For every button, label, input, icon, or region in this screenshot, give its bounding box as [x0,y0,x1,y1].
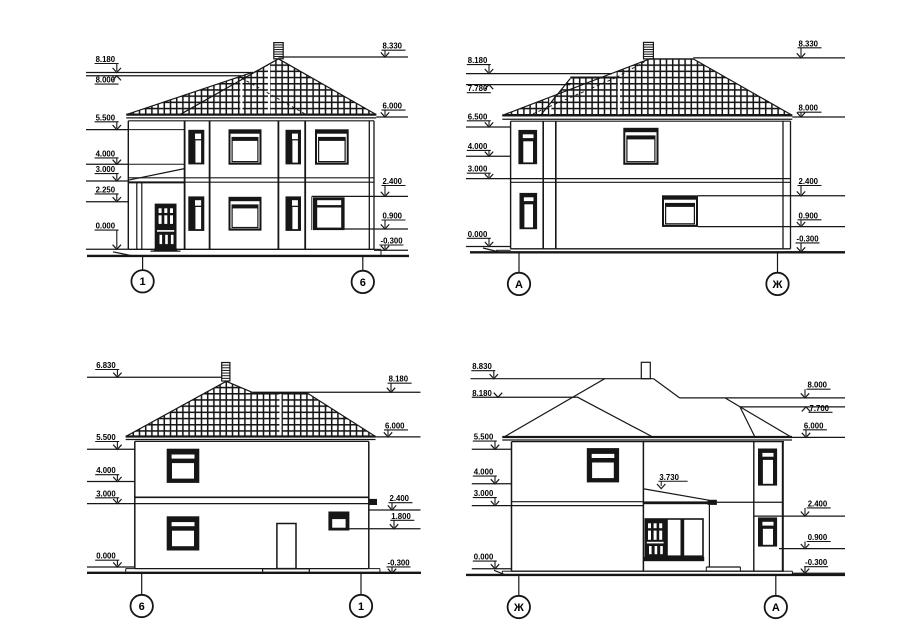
svg-text:6.830: 6.830 [96,361,116,370]
svg-text:5.500: 5.500 [96,113,116,122]
svg-text:8.000: 8.000 [799,104,819,113]
svg-text:2.400: 2.400 [383,177,403,186]
svg-text:1: 1 [358,601,364,613]
svg-text:4.000: 4.000 [474,468,494,477]
svg-text:5.500: 5.500 [96,433,116,442]
svg-text:1.800: 1.800 [391,512,411,521]
svg-text:6: 6 [360,277,366,289]
svg-text:8.180: 8.180 [468,56,488,65]
svg-text:8.000: 8.000 [808,381,828,390]
svg-text:3.000: 3.000 [468,165,488,174]
svg-text:0.000: 0.000 [468,230,488,239]
svg-text:1: 1 [140,276,146,288]
svg-text:8.330: 8.330 [799,39,819,48]
svg-text:Ж: Ж [513,602,524,614]
svg-text:8.830: 8.830 [472,362,492,371]
svg-text:2.250: 2.250 [96,185,116,194]
svg-text:0.000: 0.000 [96,552,116,561]
svg-text:7.700: 7.700 [810,404,830,413]
svg-text:0.000: 0.000 [96,222,116,231]
svg-text:6: 6 [139,601,145,613]
svg-text:8.180: 8.180 [96,55,116,64]
svg-text:3.000: 3.000 [96,165,116,174]
svg-text:8.180: 8.180 [389,375,409,384]
svg-text:0.900: 0.900 [808,533,828,542]
svg-text:6.000: 6.000 [804,421,824,430]
svg-text:4.000: 4.000 [96,466,116,475]
svg-text:2.400: 2.400 [808,499,828,508]
svg-text:-0.300: -0.300 [388,558,411,567]
svg-text:Ж: Ж [772,279,783,291]
svg-text:6.500: 6.500 [468,112,488,121]
svg-text:А: А [772,602,780,614]
svg-text:4.000: 4.000 [468,142,488,151]
svg-text:3.000: 3.000 [474,489,494,498]
svg-text:6.000: 6.000 [385,421,405,430]
svg-text:5.500: 5.500 [474,433,494,442]
svg-text:0.900: 0.900 [383,212,403,221]
svg-text:-0.300: -0.300 [381,237,404,246]
svg-text:6.000: 6.000 [383,102,403,111]
svg-text:А: А [515,279,523,291]
svg-text:-0.300: -0.300 [805,558,828,567]
svg-text:3.730: 3.730 [659,473,679,482]
svg-text:0.000: 0.000 [474,553,494,562]
svg-text:2.400: 2.400 [390,494,410,503]
svg-text:8.330: 8.330 [383,42,403,51]
svg-text:3.000: 3.000 [96,489,116,498]
svg-text:0.900: 0.900 [799,211,819,220]
svg-text:2.400: 2.400 [799,177,819,186]
svg-text:-0.300: -0.300 [797,234,820,243]
svg-text:8.180: 8.180 [472,389,492,398]
svg-text:4.000: 4.000 [96,149,116,158]
